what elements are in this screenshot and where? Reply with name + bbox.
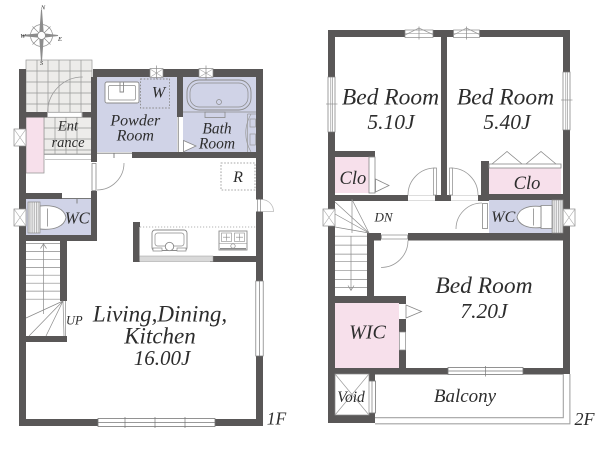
svg-text:Room: Room (116, 127, 154, 144)
svg-text:Kitchen: Kitchen (123, 324, 196, 349)
svg-text:Clo: Clo (514, 174, 541, 194)
svg-text:Ent: Ent (57, 119, 79, 135)
svg-text:2F: 2F (575, 409, 596, 429)
svg-text:Void: Void (337, 389, 365, 406)
svg-text:Balcony: Balcony (434, 386, 497, 407)
svg-text:16.00J: 16.00J (134, 346, 192, 370)
svg-text:W: W (20, 33, 26, 40)
svg-text:Room: Room (198, 136, 235, 153)
svg-text:E: E (57, 36, 62, 43)
svg-text:Bed Room: Bed Room (457, 85, 554, 111)
svg-text:WIC: WIC (349, 322, 386, 344)
svg-text:N: N (40, 5, 46, 12)
svg-text:UP: UP (66, 314, 83, 328)
svg-text:Clo: Clo (340, 169, 367, 189)
svg-text:5.10J: 5.10J (367, 110, 416, 134)
svg-text:7.20J: 7.20J (460, 299, 509, 323)
svg-text:W: W (152, 85, 167, 102)
svg-text:5.40J: 5.40J (483, 110, 532, 134)
svg-text:WC: WC (65, 208, 91, 227)
svg-text:1F: 1F (267, 409, 287, 429)
svg-text:R: R (232, 169, 243, 186)
svg-text:Bed Room: Bed Room (342, 85, 439, 111)
svg-text:Bed Room: Bed Room (435, 273, 532, 299)
svg-text:rance: rance (51, 135, 85, 151)
svg-text:WC: WC (491, 209, 515, 226)
svg-text:DN: DN (373, 210, 393, 225)
